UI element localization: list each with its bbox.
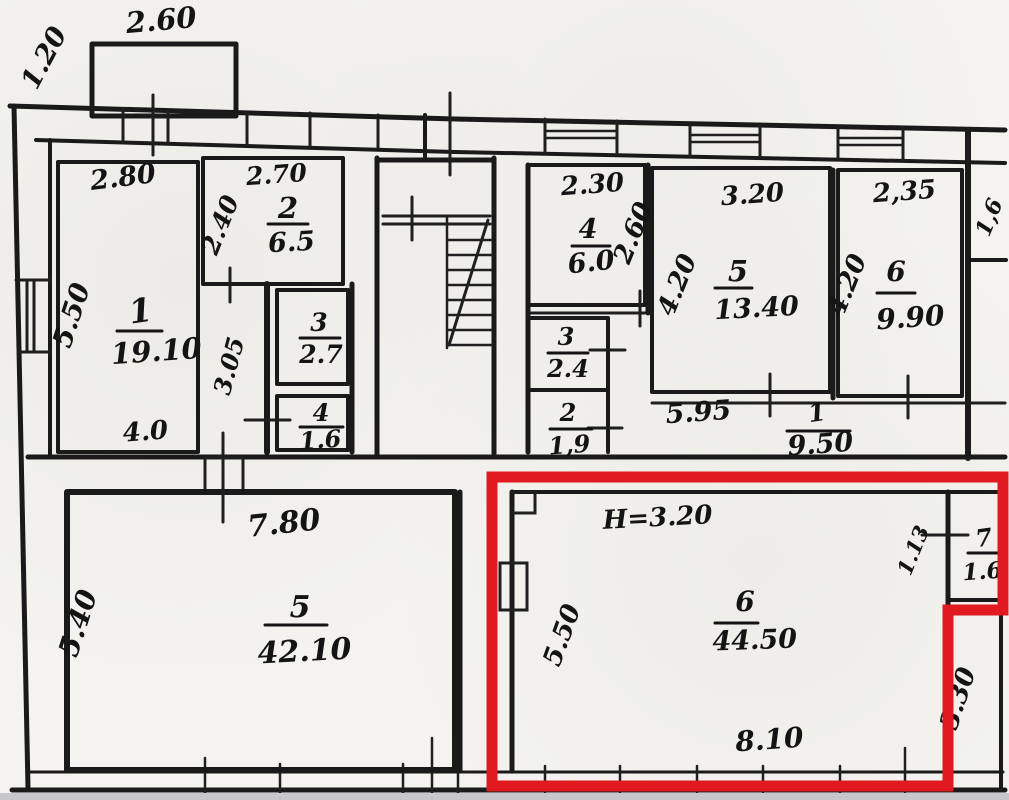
window-sill-lines [547,131,903,145]
plan-label-36-7.80: 7.80 [246,502,322,544]
plan-label-12-3: 3 [310,308,327,337]
plan-label-21-5: 5 [728,254,748,288]
plan-label-7-1: 1 [126,290,154,332]
plan-label-31-2: 2 [559,398,577,427]
plan-label-16-2.30: 2.30 [559,168,625,202]
plan-label-45-1.13: 1.13 [892,522,934,579]
plan-label-20-3.20: 3.20 [720,178,785,212]
lower-rooms [67,492,1005,790]
scan-edge-strip [0,793,1009,800]
floor-plan-svg: 1.202.602.802.7026.52.40119.105.504.03.0… [0,0,1009,800]
plan-label-3-2.70: 2.70 [244,158,308,191]
red-room-top-notch [512,492,535,513]
plan-label-30-2.4: 2.4 [546,354,589,383]
plan-label-46-7: 7 [974,522,995,553]
plan-label-35-9.50: 9.50 [787,427,855,463]
porch-outline [92,44,236,116]
plan-label-22-13.40: 13.40 [714,291,800,326]
plan-label-32-1,9: 1,9 [548,429,592,461]
plan-label-44-8.10: 8.10 [733,721,805,759]
plan-label-25-6: 6 [886,255,905,288]
plan-label-13-2.7: 2.7 [298,340,343,369]
plan-label-9-5.50: 5.50 [47,279,97,351]
plan-label-0-1.20: 1.20 [15,22,73,95]
plan-label-38-5: 5 [290,590,311,625]
stair-shaft-walls [377,158,494,455]
plan-label-15-1.6: 1.6 [299,424,343,456]
plan-label-28-1,6: 1,6 [970,195,1008,240]
upper-left-rooms [58,158,352,452]
plan-label-5-6.5: 6.5 [267,226,316,259]
plan-label-42-6: 6 [735,585,754,618]
plan-label-29-3: 3 [558,322,575,351]
plan-label-47-1.6: 1.6 [962,557,1004,587]
plan-label-37-5.40: 5.40 [52,585,105,661]
plan-label-11-3.05: 3.05 [207,334,250,398]
plan-label-41-5.50: 5.50 [538,600,588,670]
floor-plan-scan: 1.202.602.802.7026.52.40119.105.504.03.0… [0,0,1009,800]
plan-label-1-2.60: 2.60 [123,0,197,40]
top-wall-inner [36,140,1005,163]
plan-label-14-4: 4 [313,398,330,427]
staircase [377,115,494,455]
plan-label-39-42.10: 42.10 [257,632,353,672]
plan-label-33-5.95: 5.95 [665,395,733,431]
plan-label-26-9.90: 9.90 [875,299,946,337]
plan-label-17-4: 4 [579,214,598,245]
plan-label-43-44.50: 44.50 [712,624,798,658]
plan-label-48-3.30: 3.30 [934,664,982,733]
left-wall-outer [14,106,28,788]
plan-label-24-2,35: 2,35 [871,175,937,209]
plan-label-18-6.0: 6.0 [566,245,616,281]
plan-label-23-4.20: 4.20 [652,250,704,320]
plan-label-4-2: 2 [277,191,298,225]
plan-label-10-4.0: 4.0 [122,415,169,448]
plan-label-40-H=3.20: H=3.20 [601,500,713,536]
stair-landing-line [383,216,490,224]
plan-label-8-19.10: 19.10 [110,331,203,371]
